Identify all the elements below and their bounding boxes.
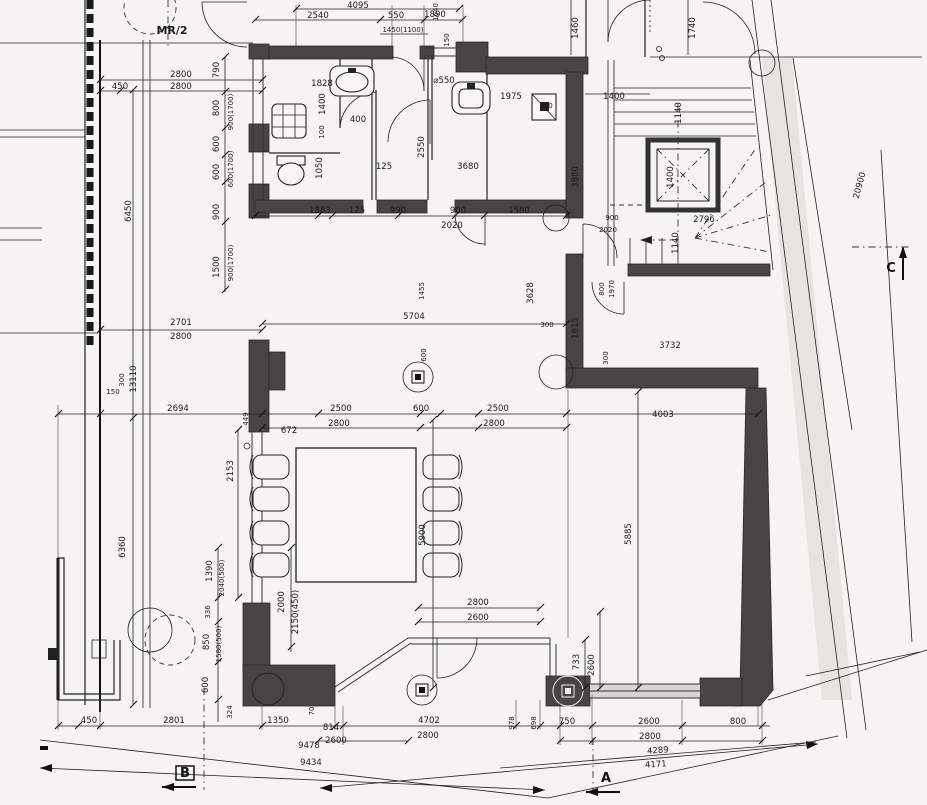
dimension-label: 990: [390, 206, 406, 216]
dimension-label: 300: [602, 351, 610, 364]
dimension-label: 2000: [277, 591, 287, 613]
dimension-label: 790: [212, 62, 222, 78]
dimension-label: 672: [281, 426, 297, 436]
dimension-label: 3880: [571, 166, 581, 188]
dimension-label: 3628: [526, 282, 536, 304]
dimension-label: 1828: [311, 79, 333, 89]
section-marker-a-label: A: [601, 771, 611, 786]
dimension-label: 2040(500): [218, 559, 226, 596]
dimension-label: 600: [201, 677, 211, 693]
dimension-label: 2500: [330, 404, 352, 414]
dimension-label: 336: [204, 605, 212, 619]
dimension-label: 2800: [170, 70, 192, 80]
dimension-label: 600(1700): [227, 150, 235, 187]
floor-plan-canvas: B A C MR/2 4095254055018901450(1100)1640…: [0, 0, 927, 805]
dimension-lines: [40, 0, 818, 794]
dimension-label: 125: [376, 162, 392, 172]
dimension-label: 3680: [457, 162, 479, 172]
toilet: [277, 156, 305, 185]
dimension-label: 800: [212, 100, 222, 116]
dining-table: [296, 448, 416, 582]
dimension-label: 1350: [267, 716, 289, 726]
dimension-label: 600: [212, 164, 222, 180]
dimension-label: 1390: [205, 560, 215, 582]
dimension-label: 1500: [212, 256, 222, 278]
plan-label: MR/2: [156, 24, 187, 37]
socket-symbol: [244, 443, 250, 449]
dimension-label: 1975: [500, 92, 522, 102]
dimension-label: 6450: [124, 200, 134, 222]
dimension-label: 900(1700): [227, 244, 235, 281]
column: [407, 675, 437, 705]
kitchen-sink: [452, 82, 490, 114]
washbasin: [330, 66, 374, 96]
dimension-label: 1450(1100): [382, 26, 423, 34]
dimension-label: 300: [540, 321, 553, 329]
dimension-label: 1400: [603, 92, 625, 102]
dimension-label: 550: [388, 11, 404, 21]
section-arrow-b: [162, 783, 174, 791]
section-marker-c: C: [886, 246, 907, 280]
dimension-label: 1140: [671, 232, 681, 254]
dimension-label: 1400: [318, 93, 328, 115]
shower-tray: [272, 104, 306, 138]
column: [403, 362, 433, 392]
dimension-label: 2800: [170, 332, 192, 342]
dimension-label: 900: [450, 206, 466, 216]
dimension-label: 150: [443, 33, 451, 46]
dimension-label: 3732: [659, 341, 681, 351]
dimension-label: 450: [112, 82, 128, 92]
dimension-label: 1883: [309, 206, 331, 216]
dimension-label: 850: [202, 634, 212, 650]
dimension-label: 449: [242, 412, 250, 425]
dimension-label: 2020: [441, 221, 463, 231]
stairs: [608, 60, 773, 276]
dimension-label: 6360: [118, 536, 128, 558]
dimension-label: 2153: [226, 460, 236, 482]
dimension-label: 5885: [624, 523, 634, 545]
dimension-label: 5704: [403, 312, 425, 322]
dimension-label: 733: [572, 654, 582, 670]
dimension-label: 1580: [508, 206, 530, 216]
dimension-label: 1815: [571, 317, 581, 339]
dimension-label: 324: [226, 705, 234, 719]
dimension-label: 750: [559, 717, 575, 727]
dimension-label: 2800: [483, 419, 505, 429]
dimension-label: 900: [605, 214, 618, 222]
dimension-label: 600: [212, 136, 222, 152]
dimension-label: 150: [106, 388, 119, 396]
section-marker-c-label: C: [886, 261, 896, 276]
dimension-label: 1460: [571, 17, 581, 39]
dimension-label: 978: [508, 716, 516, 729]
dimension-label: 100: [318, 125, 326, 138]
dimension-label: 1140: [674, 102, 684, 124]
dimension-label: 2701: [170, 318, 192, 328]
dimension-label: 1455: [418, 282, 426, 300]
dimension-label: 800: [598, 282, 606, 295]
dimension-label: 2800: [467, 598, 489, 608]
section-arrow-c: [899, 246, 907, 258]
dimension-label: 20900: [852, 171, 869, 200]
dimension-label: 2550: [417, 136, 427, 158]
section-marker-b-label: B: [180, 766, 190, 781]
dimension-label: 2020: [599, 226, 617, 234]
dimension-label: 800: [730, 717, 746, 727]
dimension-label: 5900: [418, 524, 428, 546]
dimension-label: 400: [350, 115, 366, 125]
site-boundary: [0, 0, 927, 798]
dimension-label: 2600: [467, 613, 489, 623]
dimension-label: 1970: [608, 280, 616, 298]
dimension-label: 900: [212, 204, 222, 220]
dimension-label: 2800: [417, 731, 439, 741]
dimension-label: 2540: [307, 11, 329, 21]
dimension-label: 2150(450): [291, 590, 301, 635]
dimension-label: 4171: [645, 759, 667, 770]
dimension-label: ⌀550: [433, 76, 454, 86]
dimension-label: 1740: [688, 17, 698, 39]
dimension-label: 2800: [170, 82, 192, 92]
dimension-label: 2500: [487, 404, 509, 414]
dimension-label: 1580(500): [215, 625, 223, 662]
dimension-label: 9478: [298, 741, 320, 751]
dimension-label: 450: [81, 716, 97, 726]
dimension-label: 4003: [652, 410, 674, 420]
dimension-label: 13110: [129, 365, 139, 392]
dimension-label: 1640: [432, 3, 440, 21]
dimension-label: 4289: [647, 745, 669, 756]
dimension-label: 4702: [418, 716, 440, 726]
dimension-label: 2801: [163, 716, 185, 726]
elevator: [648, 140, 718, 210]
dimension-label: 2694: [167, 404, 189, 414]
dimension-label: 2600: [638, 717, 660, 727]
dimension-label: 600: [420, 348, 428, 361]
dimension-label: 2796: [693, 215, 715, 225]
dining-table-group: [244, 443, 462, 582]
dimension-label: 1400: [666, 166, 676, 188]
section-marker-b: B: [162, 766, 196, 791]
dimension-label: 900(1700): [227, 93, 235, 130]
dimension-label: 9434: [300, 758, 322, 768]
floor-plan-page: B A C MR/2 4095254055018901450(1100)1640…: [0, 0, 927, 805]
dimension-label: 600: [413, 404, 429, 414]
dimension-label: 300: [118, 373, 126, 386]
dimension-label: 814: [323, 723, 339, 733]
dimension-label: 1050: [315, 157, 325, 179]
dimension-label: 4095: [347, 1, 369, 11]
dimension-label: 2800: [639, 732, 661, 742]
dimension-label: 2800: [328, 419, 350, 429]
dimension-label: 125: [349, 206, 365, 216]
dimension-label: 70: [308, 707, 316, 716]
dimension-label: 300: [539, 102, 552, 110]
dimension-label: 2600: [587, 654, 597, 676]
dimension-label: 2600: [325, 736, 347, 746]
dimension-label: 698: [530, 716, 538, 729]
